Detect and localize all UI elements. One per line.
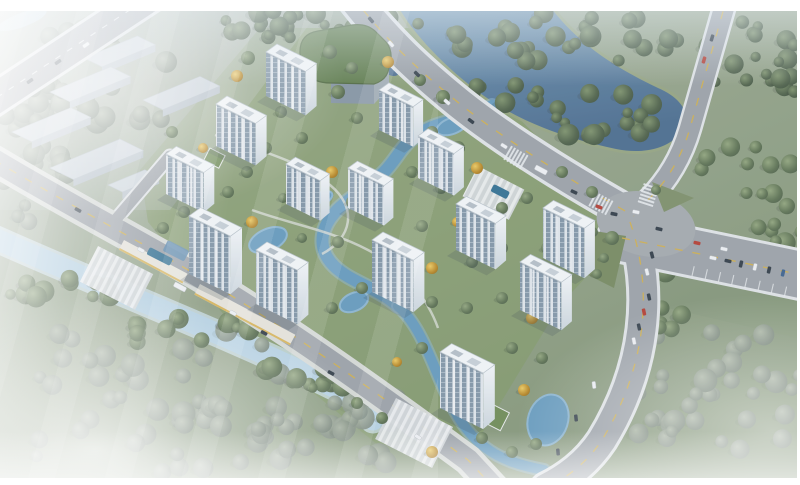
forest-tree [666, 425, 678, 437]
forest-tree [233, 454, 249, 470]
tower-stair-core [555, 214, 557, 265]
green-tree [586, 186, 598, 198]
forest-tree [507, 77, 524, 94]
tower-stair-core [384, 246, 386, 299]
forest-tree [750, 52, 760, 62]
tower-stair-core [291, 64, 293, 109]
forest-tree [127, 434, 145, 452]
tower-stair-core [399, 253, 401, 306]
forest-tree [175, 415, 194, 434]
forest-tree [30, 430, 48, 448]
green-tree [351, 397, 363, 409]
forest-tree [583, 124, 604, 145]
forest-tree [195, 349, 213, 367]
tower-stair-core [268, 256, 270, 311]
car [574, 414, 578, 421]
tower-stair-core [359, 173, 361, 214]
forest-tree [558, 124, 580, 146]
forest-tree [19, 199, 31, 211]
tower-stair-core [547, 275, 549, 324]
forest-tree [773, 429, 792, 448]
tower-stair-core [296, 169, 298, 210]
forest-tree [545, 26, 565, 46]
tower-stair-core [441, 147, 443, 190]
autumn-tree [392, 357, 402, 367]
tower-end-wall [561, 275, 572, 331]
forest-tree [585, 11, 599, 25]
forest-tree [172, 338, 194, 360]
forest-tree [715, 435, 728, 448]
forest-tree [210, 415, 232, 437]
forest-tree [72, 422, 90, 440]
forest-tree [132, 106, 149, 123]
tower-end-wall [230, 228, 242, 294]
autumn-tree [518, 384, 530, 396]
green-tree [376, 412, 388, 424]
tower-end-wall [454, 146, 464, 195]
tower-end-wall [384, 179, 393, 226]
forest-tree [488, 28, 506, 46]
green-tree [326, 302, 338, 314]
forest-tree [232, 21, 250, 39]
green-tree [461, 302, 473, 314]
forest-tree [771, 69, 791, 89]
green-tree [166, 126, 178, 138]
forest-tree [194, 332, 210, 348]
forest-tree [613, 85, 633, 105]
car [556, 448, 560, 455]
green-tree [476, 432, 488, 444]
forest-tree [623, 30, 642, 49]
forest-tree [768, 218, 781, 231]
tower-stair-core [468, 210, 470, 257]
forest-tree [672, 305, 691, 324]
tower-stair-core [401, 101, 403, 142]
forest-tree [751, 219, 767, 235]
forest-tree [53, 349, 72, 368]
forest-tree [333, 420, 354, 441]
tower-stair-core [278, 58, 280, 103]
green-tree [241, 51, 255, 65]
green-tree [222, 186, 234, 198]
forest-tree [155, 51, 177, 73]
tower-stair-core [481, 216, 483, 263]
forest-tree [761, 69, 772, 80]
tower-stair-core [371, 179, 373, 220]
forest-tree [659, 29, 678, 48]
green-tree [297, 233, 307, 243]
forest-tree [622, 108, 632, 118]
green-tree [356, 282, 368, 294]
green-tree [331, 85, 345, 99]
forest-tree [613, 55, 625, 67]
tower-stair-core [453, 358, 455, 415]
tower-stair-core [216, 229, 218, 288]
forest-tree [747, 387, 760, 400]
green-tree [351, 112, 363, 124]
forest-tree [724, 54, 743, 73]
tower-stair-core [177, 160, 179, 201]
forest-tree [748, 28, 763, 43]
forest-tree [730, 440, 749, 459]
tower-stair-core [283, 263, 285, 318]
forest-tree [779, 198, 795, 214]
forest-tree [723, 372, 739, 388]
forest-tree [286, 368, 306, 388]
forest-tree [551, 112, 562, 123]
forest-tree [278, 441, 296, 459]
green-tree [599, 253, 609, 263]
tower-end-wall [320, 174, 329, 221]
forest-tree [254, 337, 269, 352]
tower-stair-core [241, 116, 243, 159]
forest-tree [529, 15, 543, 29]
autumn-tree [231, 70, 243, 82]
scene-canvas [0, 11, 797, 478]
forest-tree [261, 357, 282, 378]
autumn-tree [426, 446, 438, 458]
green-tree [651, 185, 661, 195]
architectural-aerial-rendering [0, 0, 800, 485]
tower-stair-core [201, 222, 203, 281]
forest-tree [580, 84, 599, 103]
forest-tree [654, 380, 668, 394]
green-tree [592, 269, 602, 279]
forest-tree [42, 375, 62, 395]
forest-tree [327, 396, 342, 411]
forest-tree [271, 413, 285, 427]
forest-tree [629, 424, 649, 444]
forest-tree [774, 57, 784, 67]
forest-tree [129, 325, 146, 342]
forest-tree [690, 387, 703, 400]
green-tree [521, 192, 533, 204]
forest-tree [176, 368, 191, 383]
forest-tree [170, 447, 184, 461]
green-tree [406, 166, 418, 178]
forest-tree [358, 445, 378, 465]
forest-tree [703, 324, 720, 341]
tower-end-wall [413, 252, 424, 312]
forest-tree [170, 458, 188, 476]
forest-tree [31, 450, 43, 462]
forest-tree [114, 391, 127, 404]
forest-tree [756, 188, 768, 200]
tower-stair-core [429, 141, 431, 184]
forest-tree [753, 324, 774, 345]
forest-tree [11, 209, 25, 223]
green-tree [426, 296, 438, 308]
green-tree [536, 352, 548, 364]
forest-tree [412, 18, 424, 30]
forest-tree [375, 452, 396, 473]
tower-end-wall [584, 221, 595, 279]
forest-tree [49, 324, 69, 344]
forest-tree [157, 320, 175, 338]
forest-tree [644, 413, 659, 428]
forest-tree [775, 405, 795, 425]
green-tree [323, 45, 337, 59]
green-tree [556, 166, 568, 178]
tower-end-wall [496, 216, 507, 270]
tower-stair-core [570, 221, 572, 272]
forest-tree [734, 335, 751, 352]
forest-tree [740, 73, 753, 86]
forest-tree [284, 32, 295, 43]
green-tree [416, 342, 428, 354]
forest-tree [738, 410, 756, 428]
tower-stair-core [228, 110, 230, 153]
forest-tree [741, 157, 754, 170]
autumn-tree [471, 162, 483, 174]
forest-tree [172, 312, 185, 325]
green-tree [416, 220, 428, 232]
forest-tree [753, 365, 771, 383]
forest-tree [5, 289, 16, 300]
tower-stair-core [308, 175, 310, 216]
tower-stair-core [389, 95, 391, 136]
tower-stair-core [468, 366, 470, 423]
autumn-tree [382, 56, 394, 68]
autumn-tree [426, 262, 438, 274]
tower-end-wall [297, 262, 308, 324]
forest-tree [762, 156, 779, 173]
forest-tree [741, 187, 753, 199]
forest-tree [527, 91, 539, 103]
forest-tree [643, 116, 660, 133]
forest-tree [507, 42, 524, 59]
forest-tree [214, 399, 232, 417]
car [592, 381, 596, 388]
tower-stair-core [190, 166, 192, 207]
forest-tree [61, 270, 79, 288]
green-tree [346, 62, 358, 74]
forest-tree [621, 13, 637, 29]
forest-tree [698, 149, 715, 166]
tower-end-wall [483, 365, 495, 429]
green-tree [332, 236, 344, 248]
forest-tree [308, 383, 318, 393]
forest-tree [736, 15, 750, 29]
tower-stair-core [532, 268, 534, 317]
forest-tree [313, 414, 332, 433]
green-tree [296, 132, 308, 144]
forest-tree [448, 25, 466, 43]
forest-tree [580, 26, 599, 45]
green-tree [530, 438, 542, 450]
green-tree [605, 231, 619, 245]
forest-tree [146, 398, 169, 421]
forest-tree [25, 286, 47, 308]
autumn-tree [246, 216, 258, 228]
forest-tree [269, 16, 288, 35]
green-tree [506, 342, 518, 354]
forest-tree [88, 366, 109, 387]
forest-tree [569, 38, 581, 50]
forest-tree [121, 353, 145, 377]
forest-tree [749, 141, 762, 154]
forest-tree [297, 438, 315, 456]
green-tree [496, 292, 508, 304]
forest-tree [251, 421, 267, 437]
forest-tree [82, 352, 98, 368]
forest-tree [721, 137, 740, 156]
autumn-tree [198, 143, 208, 153]
aerial-photo [0, 11, 797, 478]
green-tree [157, 222, 169, 234]
forest-tree [193, 458, 213, 478]
green-tree [506, 446, 518, 458]
forest-tree [686, 411, 705, 430]
